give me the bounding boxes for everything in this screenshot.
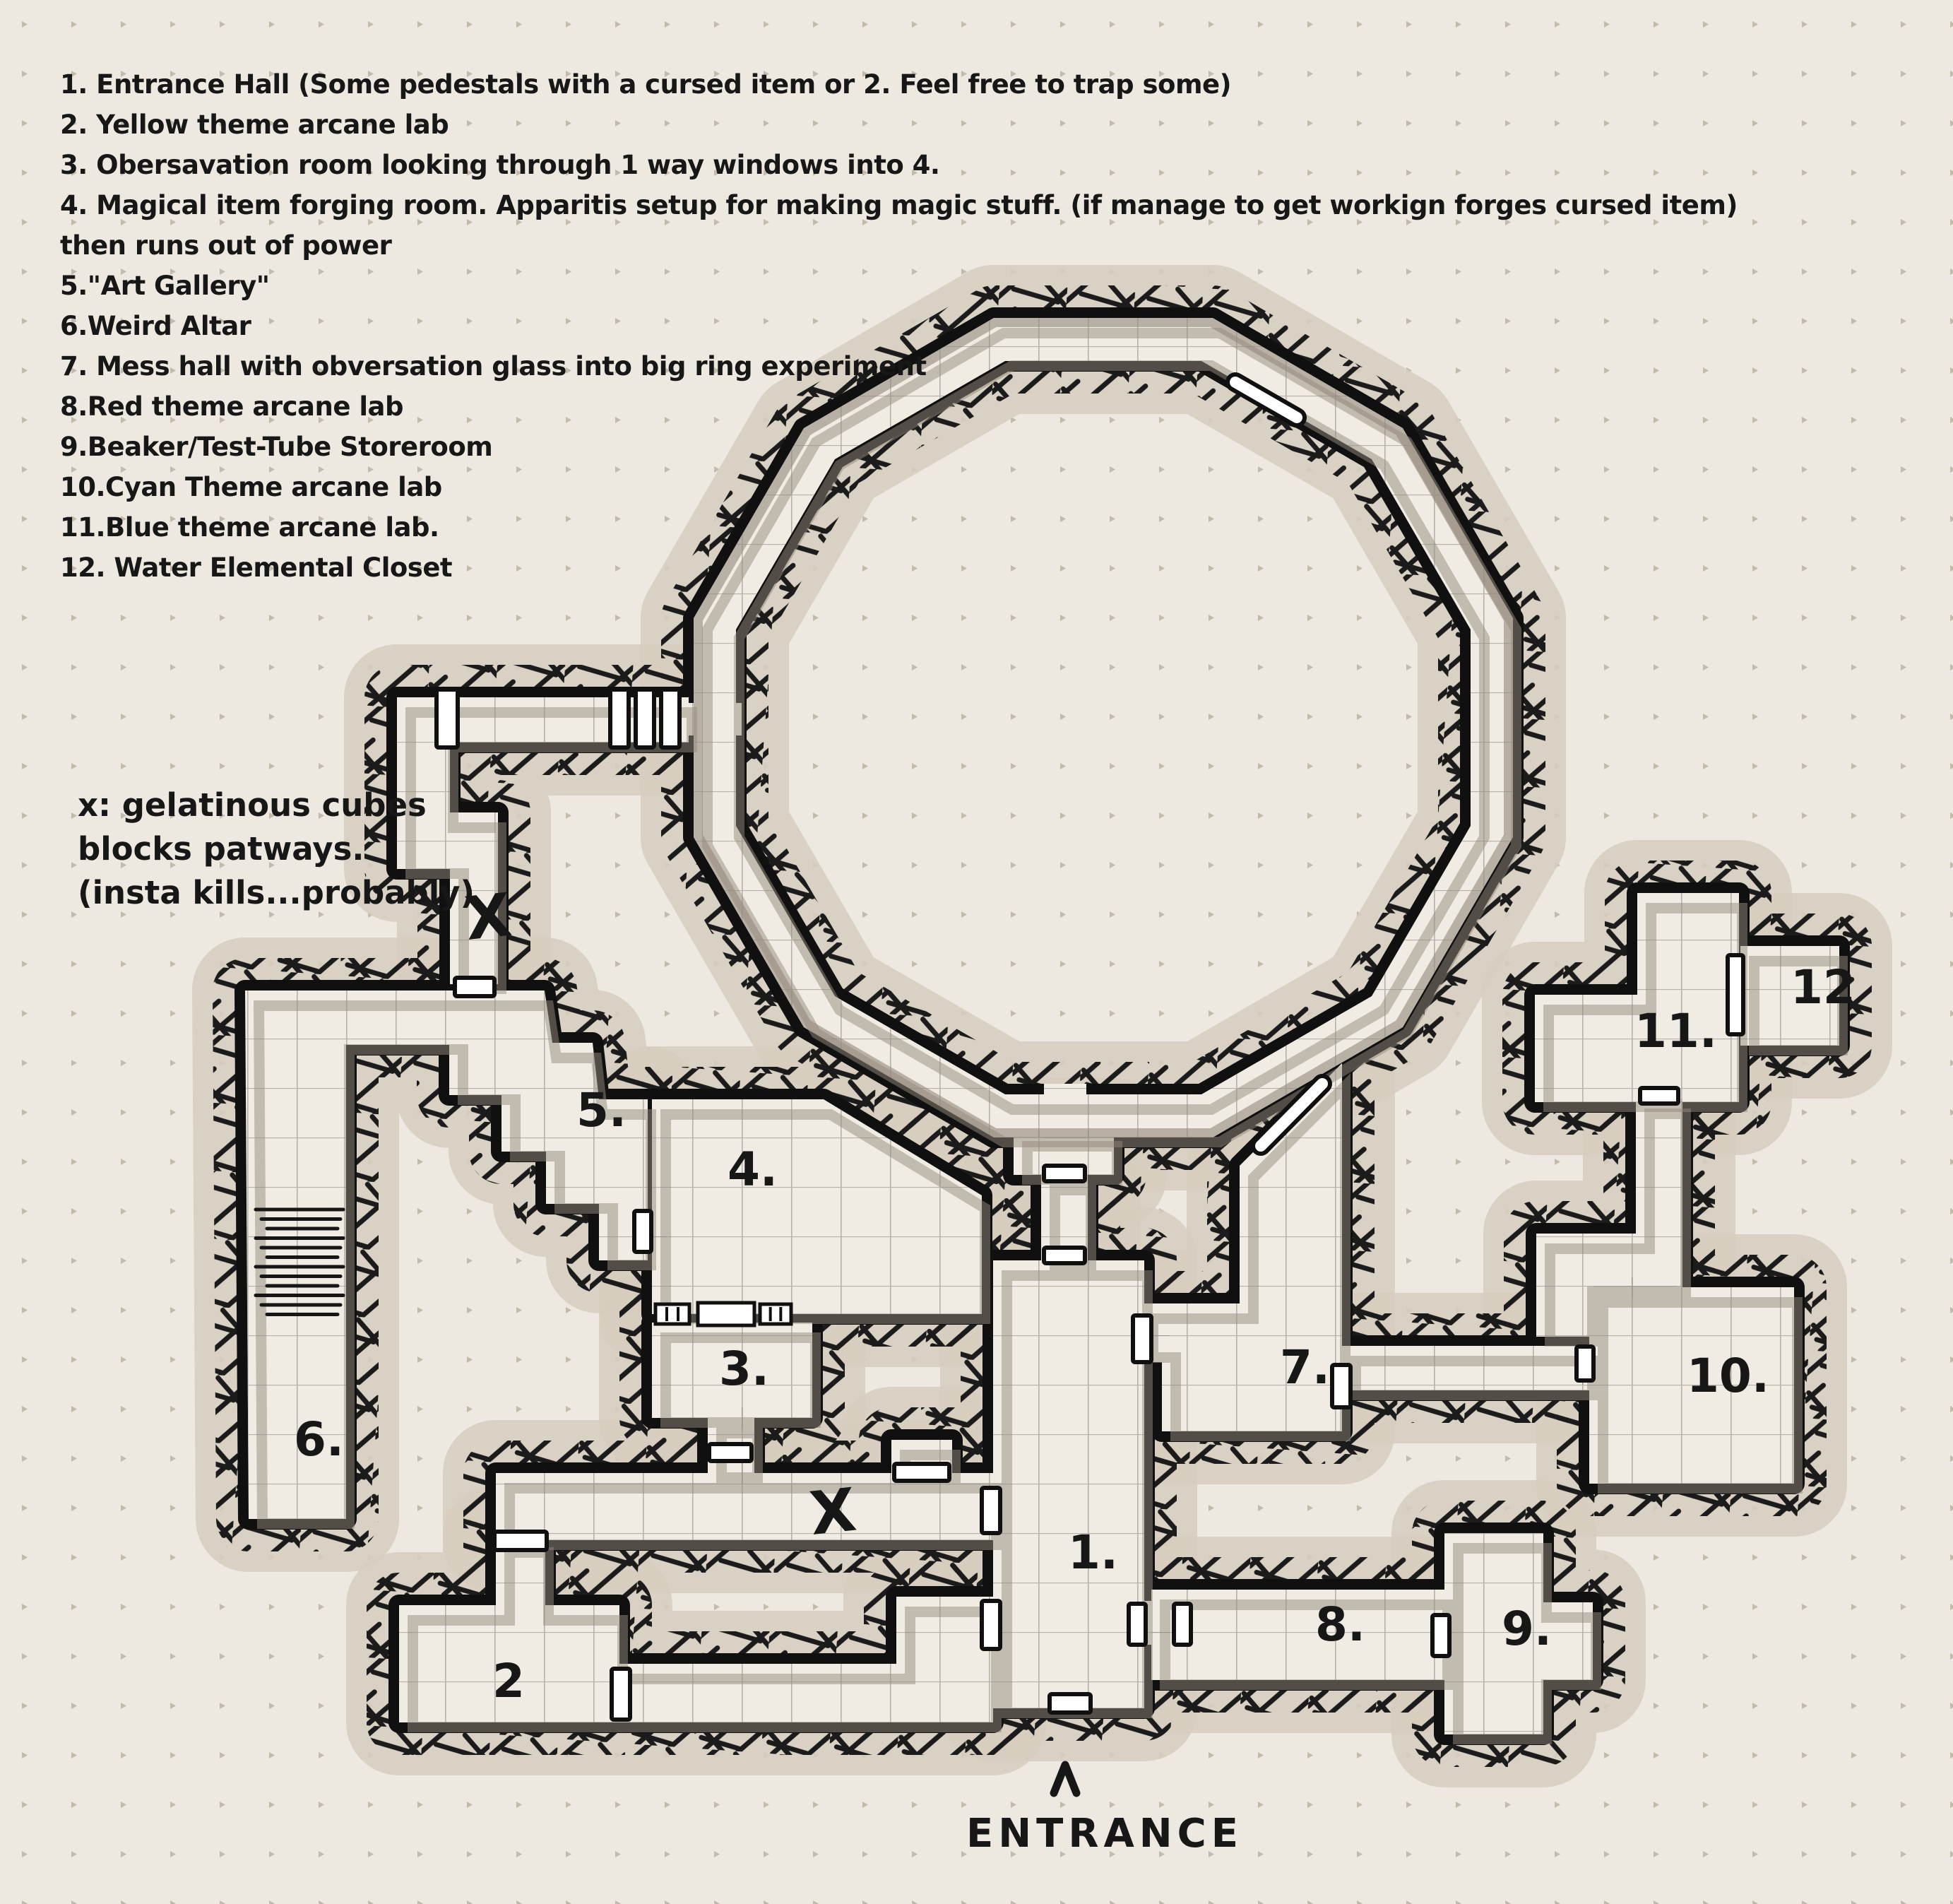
room-label-6: 6.: [294, 1412, 344, 1467]
door[interactable]: [610, 690, 629, 747]
legend-item: 7. Mess hall with obversation glass into…: [60, 351, 927, 382]
door[interactable]: [1432, 1615, 1449, 1656]
room-label-7: 7.: [1280, 1340, 1330, 1395]
dungeon-map-page: 1.23.4.5.6.7.8.9.10.11.12XX1. Entrance H…: [0, 0, 1953, 1904]
legend-item: 6.Weird Altar: [60, 311, 252, 341]
legend-item: 10.Cyan Theme arcane lab: [60, 472, 442, 502]
door[interactable]: [1174, 1604, 1191, 1645]
door[interactable]: [437, 690, 458, 747]
door[interactable]: [1133, 1315, 1151, 1362]
room-label-10: 10.: [1687, 1349, 1769, 1403]
door[interactable]: [1728, 955, 1743, 1034]
door[interactable]: [709, 1444, 752, 1461]
room-label-11: 11.: [1634, 1004, 1717, 1058]
door[interactable]: [1050, 1694, 1091, 1713]
one-way-window: [698, 1303, 754, 1325]
door[interactable]: [1129, 1604, 1146, 1645]
legend-item: 9.Beaker/Test-Tube Storeroom: [60, 432, 492, 462]
gelatinous-cube-mark: X: [807, 1475, 860, 1549]
legend-item: 8.Red theme arcane lab: [60, 391, 403, 422]
room-label-9: 9.: [1502, 1602, 1552, 1656]
room-label-1: 1.: [1068, 1525, 1118, 1580]
note-line-1: x: gelatinous cubes: [78, 786, 427, 824]
legend-item: 11.Blue theme arcane lab.: [60, 512, 439, 543]
legend-item: 12. Water Elemental Closet: [60, 552, 452, 583]
door[interactable]: [1332, 1365, 1351, 1407]
door[interactable]: [982, 1488, 1000, 1533]
room-label-5: 5.: [576, 1083, 627, 1137]
legend-item: 2. Yellow theme arcane lab: [60, 110, 449, 140]
door[interactable]: [634, 1211, 651, 1252]
door[interactable]: [1577, 1347, 1593, 1380]
door[interactable]: [636, 690, 654, 747]
room-label-12: 12: [1791, 960, 1856, 1015]
note-line-3: (insta kills...probably): [78, 874, 475, 911]
legend-item: 4. Magical item forging room. Apparitis …: [60, 190, 1738, 220]
legend-item: 1. Entrance Hall (Some pedestals with a …: [60, 69, 1231, 100]
legend-item: then runs out of power: [60, 230, 393, 261]
legend-item: 3. Obersavation room looking through 1 w…: [60, 150, 939, 180]
room-label-4: 4.: [728, 1142, 778, 1197]
note-line-2: blocks patways.: [78, 830, 364, 868]
room-label-2: 2: [492, 1654, 525, 1708]
dungeon-map: 1.23.4.5.6.7.8.9.10.11.12XX1. Entrance H…: [0, 0, 1953, 1904]
door[interactable]: [612, 1669, 630, 1720]
door[interactable]: [494, 1532, 547, 1550]
one-way-window: [655, 1304, 689, 1324]
door[interactable]: [1044, 1166, 1085, 1181]
door[interactable]: [1640, 1088, 1678, 1104]
door[interactable]: [982, 1601, 1000, 1649]
room-label-3: 3.: [719, 1342, 769, 1396]
door[interactable]: [894, 1464, 949, 1481]
door[interactable]: [661, 690, 679, 747]
legend-item: 5."Art Gallery": [60, 271, 269, 301]
one-way-window: [760, 1304, 791, 1324]
room-label-8: 8.: [1315, 1597, 1365, 1652]
door[interactable]: [455, 978, 494, 996]
door[interactable]: [1044, 1248, 1085, 1263]
entrance-label: ENTRANCE: [966, 1811, 1243, 1857]
